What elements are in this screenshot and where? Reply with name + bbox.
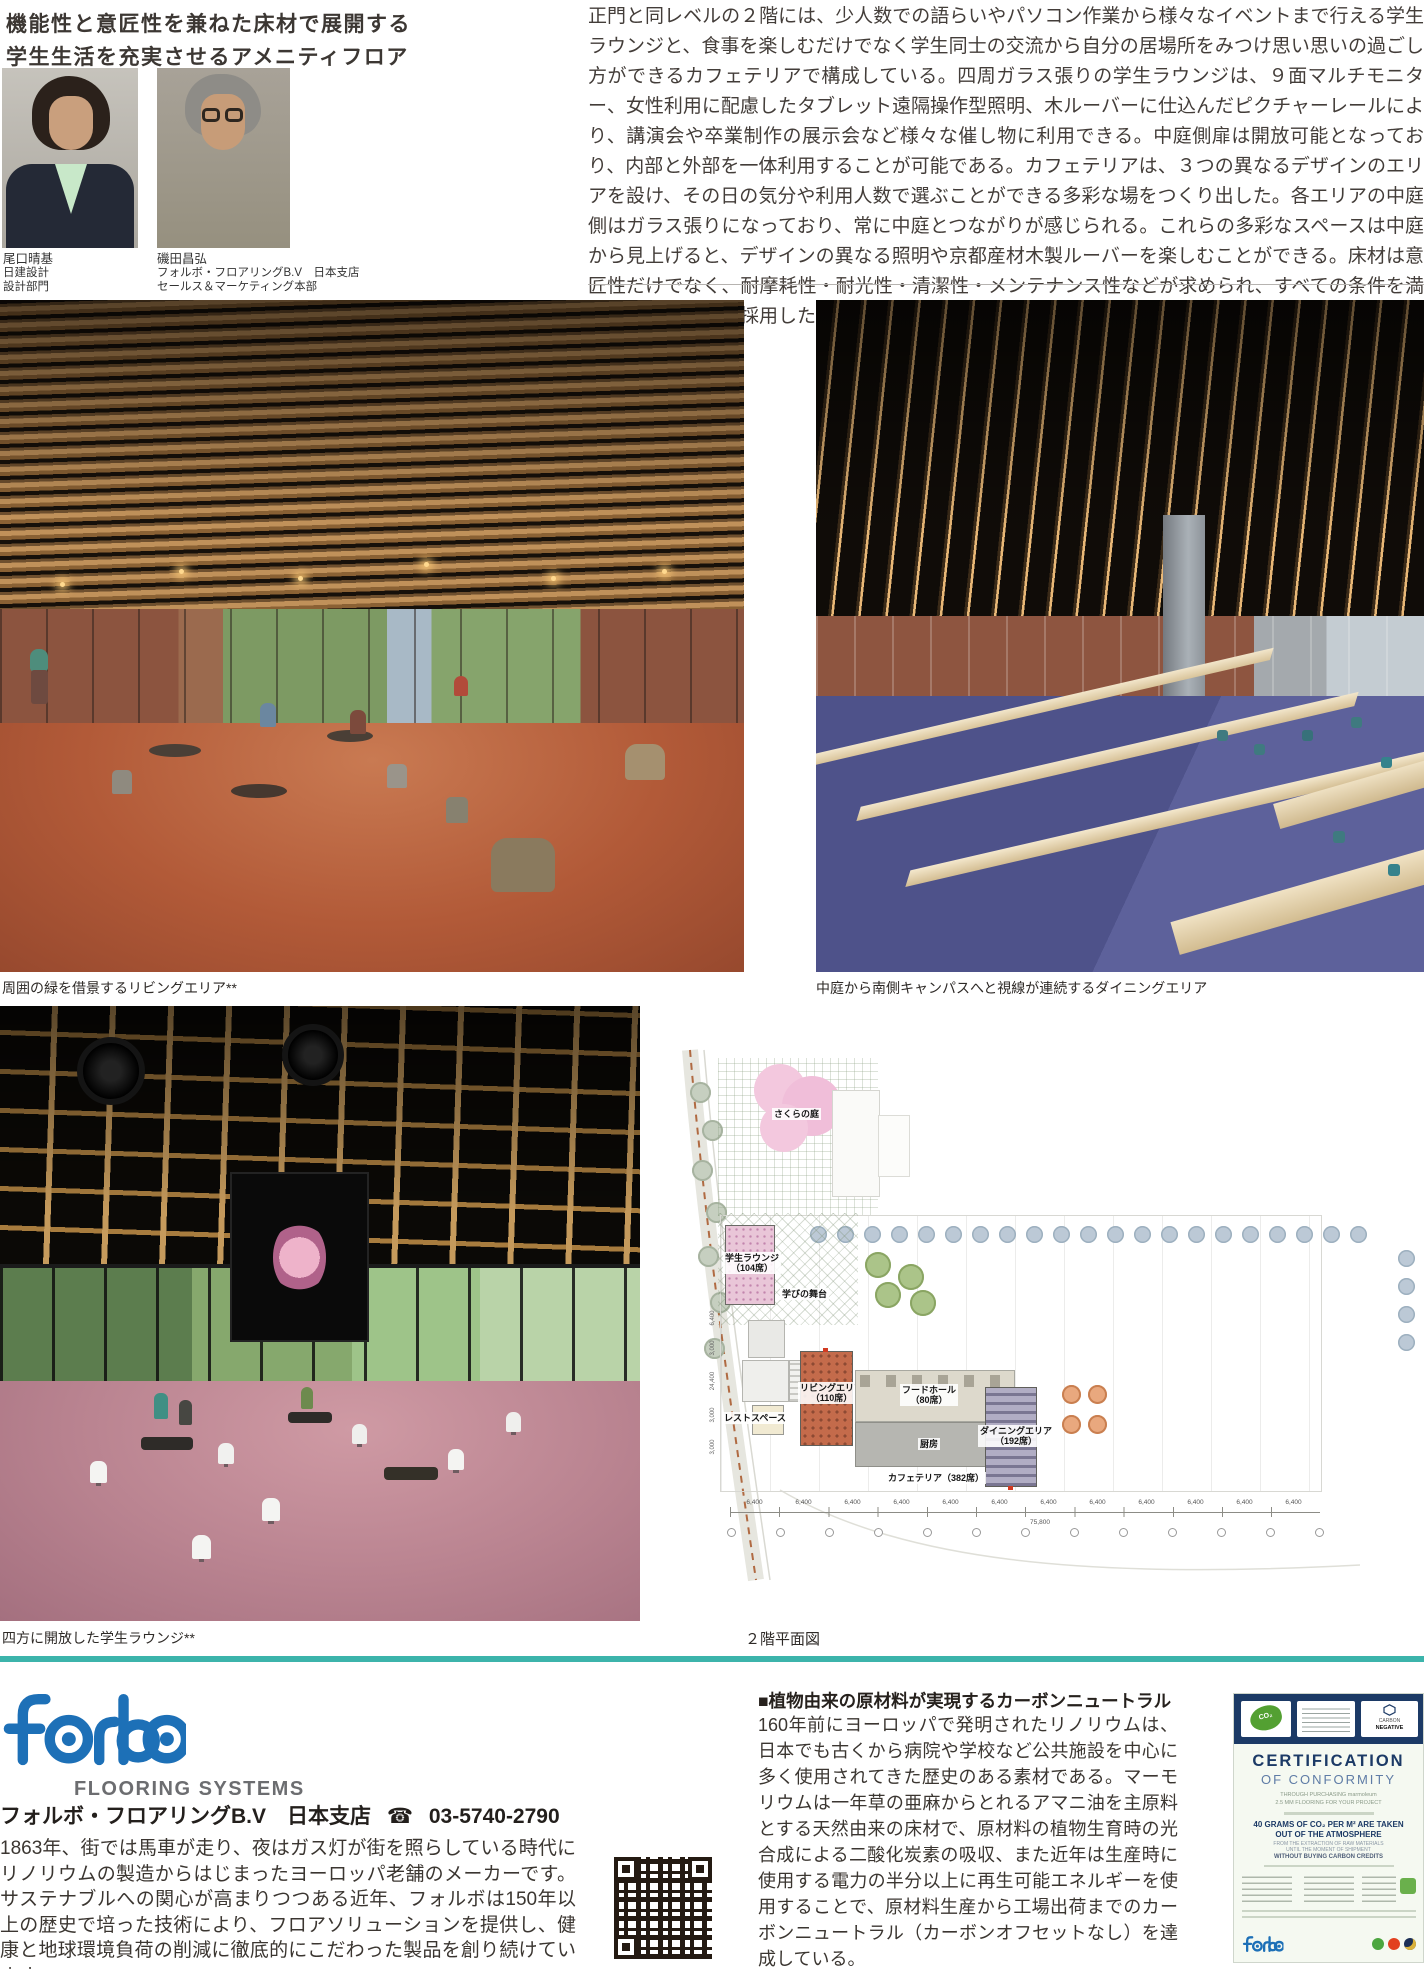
teal-chair (1388, 864, 1400, 876)
person-silhouette (454, 676, 468, 696)
plan-label-lounge: 学生ラウンジ （104席） (723, 1252, 781, 1274)
certificate-title: CERTIFICATION (1234, 1752, 1423, 1771)
certificate-card: CO₂ CARBON NEGATIVE CERTIFICATION OF CON… (1233, 1693, 1424, 1963)
wood-slat-ceiling-with-lights (816, 300, 1424, 616)
teal-chair (1217, 730, 1228, 741)
forbo-logo (2, 1688, 186, 1766)
photo-caption-living: 周囲の緑を借景するリビングエリア** (2, 978, 237, 998)
plan-structure (832, 1090, 880, 1197)
pendant-bulb (551, 576, 556, 581)
person-silhouette (301, 1387, 313, 1409)
white-chair (192, 1535, 211, 1559)
door-mark (1008, 1486, 1013, 1490)
utility-room (748, 1320, 785, 1358)
pendant-bulb (662, 569, 667, 574)
person-silhouette (30, 649, 48, 671)
person-dept: 設計部門 (3, 280, 53, 294)
plan-label-rest: レストスペース (722, 1412, 788, 1424)
teal-chair (1302, 730, 1313, 741)
dark-table (141, 1437, 193, 1450)
wood-louver-ceiling (0, 300, 744, 609)
person-silhouette (350, 710, 366, 734)
white-chair (448, 1449, 464, 1470)
company-paragraph: 1863年、街では馬車が走り、夜はガス灯が街を照らしている時代にリノリウムの製造… (0, 1836, 576, 1969)
co2-label: CO₂ (1249, 1709, 1282, 1724)
marmoleum-leaf-logo: CO₂ (1241, 1701, 1291, 1737)
certificate-claim: 40 GRAMS OF CO₂ PER M² ARE TAKEN (1234, 1820, 1423, 1829)
person-silhouette (31, 670, 48, 704)
pendant-bulb (60, 582, 65, 587)
person-silhouette (179, 1400, 192, 1425)
headline: 機能性と意匠性を兼ねた床材で展開する 学生生活を充実させるアメニティフロア (6, 8, 411, 74)
teal-chair (1254, 744, 1265, 755)
photo-caption-dining: 中庭から南側キャンパスへと視線が連続するダイニングエリア (816, 978, 1207, 998)
signature-block (1242, 1876, 1292, 1902)
qr-code (610, 1853, 716, 1963)
eco-dot-navy (1404, 1938, 1416, 1950)
person-caption-oguchi: 尾口晴基 日建設計 設計部門 (3, 252, 53, 294)
teal-chair (1333, 831, 1345, 843)
eco-dot-green (1372, 1938, 1384, 1950)
glasses-left (202, 108, 220, 122)
chair (112, 770, 132, 794)
glasses-right (225, 108, 243, 122)
company-contact-line: フォルボ・フロアリングB.V 日本支店 ☎ 03-5740-2790 (0, 1800, 560, 1830)
brick-wall-and-windows (0, 609, 744, 730)
certificate-subtitle: OF CONFORMITY (1234, 1772, 1423, 1787)
white-chair (352, 1424, 367, 1444)
person-silhouette (260, 703, 276, 727)
carbon-negative-badge: CARBON NEGATIVE (1361, 1701, 1418, 1737)
door-mark (823, 1348, 828, 1352)
person-org: 日建設計 (3, 266, 53, 280)
forbo-tagline: FLOORING SYSTEMS (74, 1778, 305, 1801)
teal-chair (1351, 717, 1362, 728)
headline-line1: 機能性と意匠性を兼ねた床材で展開する (6, 8, 411, 41)
white-chair (90, 1461, 107, 1483)
eco-dot-red (1388, 1938, 1400, 1950)
floor-plan-caption: ２階平面図 (745, 1628, 820, 1649)
white-chair (218, 1443, 234, 1464)
photo-dining-area (816, 300, 1424, 972)
person-name: 尾口晴基 (3, 252, 53, 266)
projection-screen (230, 1172, 368, 1342)
forbo-logo-small (1242, 1935, 1284, 1952)
signature-block (1304, 1876, 1354, 1902)
person-caption-isoda: 磯田昌弘 フォルボ・フロアリングB.V 日本支店 セールス＆マーケティング本部 (157, 252, 360, 294)
round-table (231, 784, 287, 798)
floor-plan: さくらの庭 学生ラウンジ （104席） 学びの舞台 レストスペース (660, 1020, 1424, 1612)
dimension-ticks (730, 1507, 1320, 1517)
person-dept: セールス＆マーケティング本部 (157, 280, 360, 294)
carbon-negative-icon (1383, 1704, 1396, 1716)
pendant-bulb (179, 569, 184, 574)
certificate-fineprint-box (1297, 1701, 1355, 1737)
intro-paragraph: 正門と同レベルの２階には、少人数での語らいやパソコン作業から様々なイベントまで行… (588, 2, 1424, 332)
armchair (491, 838, 555, 892)
teal-chair (1381, 757, 1392, 768)
armchair (625, 744, 665, 780)
magazine-page: 機能性と意匠性を兼ねた床材で展開する 学生生活を充実させるアメニティフロア 尾口… (0, 0, 1424, 1969)
plan-structure (878, 1115, 910, 1177)
person-name: 磯田昌弘 (157, 252, 360, 266)
company-name: フォルボ・フロアリングB.V 日本支店 (0, 1805, 371, 1828)
portrait-photo-isoda (157, 68, 290, 248)
teal-divider (0, 1656, 1424, 1662)
plan-label-food-hall: フードホール （80席） (900, 1384, 958, 1406)
photo-caption-lounge: 四方に開放した学生ラウンジ** (2, 1628, 195, 1648)
white-chair (506, 1412, 521, 1432)
dark-table (288, 1412, 332, 1423)
dimension-total: 75,800 (1000, 1519, 1080, 1526)
article-body: 160年前にヨーロッパで発明されたリノリウムは、日本でも古くから病院や学校など公… (758, 1712, 1178, 1969)
checkered-shirt (159, 166, 288, 248)
article-heading: ■植物由来の原材料が実現するカーボンニュートラル (758, 1688, 1171, 1713)
chair (446, 797, 468, 823)
round-table (149, 744, 201, 757)
pendant-bulb (298, 576, 303, 581)
photo-living-area (0, 300, 744, 972)
ceiling-vent (282, 1024, 344, 1086)
chair (387, 764, 407, 788)
plan-label-kitchen: 厨房 (918, 1438, 940, 1450)
person-org: フォルボ・フロアリングB.V 日本支店 (157, 266, 360, 280)
plan-label-cafeteria: カフェテリア（382席） (886, 1472, 986, 1484)
plan-label-dining: ダイニングエリア （192席） (978, 1425, 1054, 1447)
person-silhouette (154, 1393, 168, 1419)
ceiling-vent (77, 1037, 145, 1105)
dark-table (384, 1467, 438, 1480)
green-seal (1400, 1878, 1416, 1894)
portrait-photo-oguchi (2, 68, 138, 248)
phone-icon: ☎ (387, 1805, 413, 1828)
photo-student-lounge (0, 1006, 640, 1621)
signature-block (1362, 1876, 1396, 1902)
intro-divider-rule (588, 284, 1424, 285)
face (201, 94, 245, 150)
certificate-header-band: CO₂ CARBON NEGATIVE (1234, 1694, 1423, 1744)
white-chair (262, 1498, 280, 1521)
plan-label-sakura: さくらの庭 (772, 1108, 821, 1120)
flower-image (273, 1221, 327, 1294)
face (49, 96, 93, 150)
utility-room (742, 1360, 789, 1402)
phone-number: 03-5740-2790 (429, 1805, 560, 1828)
plan-label-stage: 学びの舞台 (780, 1288, 829, 1300)
